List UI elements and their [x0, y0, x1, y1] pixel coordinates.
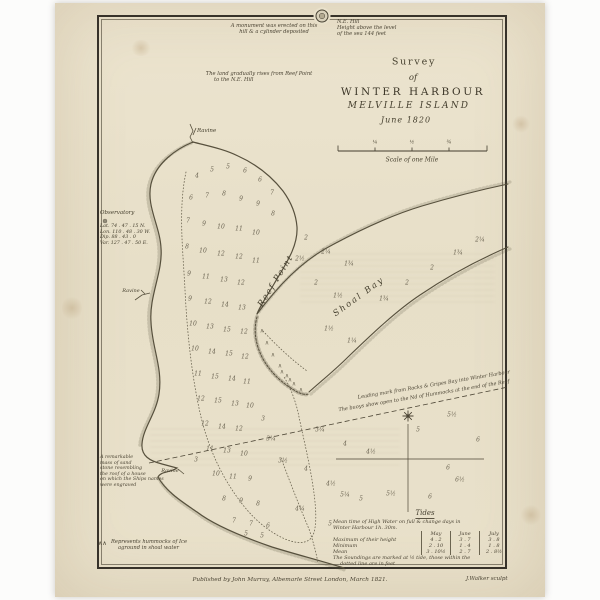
title-date: June 1820	[381, 116, 431, 125]
sounding-value: 10	[189, 321, 197, 328]
label-ravine-top: Ravine	[197, 128, 216, 134]
sounding-value: 14	[221, 302, 229, 309]
observatory-dip: Dip. 88 . 43 . 0	[100, 235, 136, 240]
sounding-value: 6	[243, 168, 247, 175]
ne-hill-note-line3: of the sea 144 feet	[337, 31, 386, 37]
sounding-value: 11	[202, 274, 210, 281]
sounding-value: 14	[208, 349, 216, 356]
sounding-value: 4	[304, 466, 308, 473]
sounding-value: 1¾	[379, 296, 389, 303]
hummock-legend-icon: ∧∧	[98, 540, 107, 547]
sounding-value: 3½	[278, 458, 288, 465]
sounding-value: 11	[194, 371, 202, 378]
sounding-value: 2½	[295, 256, 305, 263]
sounding-value: 8	[271, 211, 275, 218]
sounding-value: 1½	[324, 326, 334, 333]
sounding-value: 9	[239, 196, 243, 203]
sounding-value: 5	[359, 496, 363, 503]
sounding-value: 7	[249, 521, 253, 528]
label-ravine-south: Ravine	[161, 468, 178, 474]
sounding-value: 7	[186, 218, 190, 225]
sounding-value: 3¼	[266, 436, 276, 443]
stream-west	[135, 293, 150, 300]
ice-hummock-mark: ∧	[265, 340, 269, 347]
sounding-value: 10	[191, 346, 199, 353]
sounding-value: 4¾	[295, 506, 305, 513]
sounding-value: 5	[210, 167, 214, 174]
monument-medallion-icon	[314, 8, 331, 25]
title-melville-island: MELVILLE ISLAND	[348, 101, 470, 111]
sounding-value: 11	[206, 446, 214, 453]
tides-footnote-line2: dotted line are in feet	[340, 561, 395, 567]
sounding-value: 15	[223, 327, 231, 334]
ice-hummock-mark: ∧	[260, 328, 264, 335]
title-survey: Survey	[392, 57, 436, 68]
sounding-value: 8	[256, 501, 260, 508]
scale-tick-half: ½	[410, 141, 415, 146]
sounding-value: 1¼	[347, 338, 357, 345]
scale-tick-quarter: ¼	[373, 141, 378, 146]
sounding-value: 10	[217, 224, 225, 231]
sounding-value: 6	[258, 177, 262, 184]
publisher-imprint: Published by John Murray, Albemarle Stre…	[193, 577, 388, 583]
sounding-value: 5¼	[340, 492, 350, 499]
sounding-value: 11	[235, 226, 243, 233]
sounding-value: 9	[239, 498, 243, 505]
sounding-value: 2¼	[475, 237, 485, 244]
sounding-value: 15	[225, 351, 233, 358]
sounding-value: 13	[206, 324, 214, 331]
scale-caption: Scale of one Mile	[386, 157, 439, 164]
sounding-value: 10	[246, 403, 254, 410]
sounding-value: 12	[235, 426, 243, 433]
sounding-value: 9	[202, 221, 206, 228]
sounding-value: 5	[244, 531, 248, 538]
sounding-value: 9	[187, 271, 191, 278]
observatory-title: Observatory	[100, 210, 134, 216]
sounding-value: 2	[430, 265, 434, 272]
ice-hummock-mark: ∧	[280, 369, 284, 376]
sounding-value: 6	[428, 494, 432, 501]
sounding-value: 3¾	[315, 427, 325, 434]
stream-south	[178, 469, 184, 474]
coastlines	[140, 142, 510, 570]
observatory-lat: Lat. 74 . 47 . 15 N.	[100, 224, 145, 229]
sounding-value: 13	[231, 401, 239, 408]
sounding-value: 12	[217, 251, 225, 258]
observatory-mark-icon	[103, 219, 107, 223]
sounding-value: 2¼	[321, 249, 331, 256]
sounding-value: 6	[476, 437, 480, 444]
sounding-value: 6	[189, 195, 193, 202]
sounding-value: 1¾	[344, 261, 354, 268]
title-of: of	[409, 73, 417, 83]
sounding-value: 12	[235, 254, 243, 261]
sounding-value: 8	[222, 496, 226, 503]
sounding-value: 11	[229, 474, 237, 481]
sounding-value: 10	[212, 471, 220, 478]
sounding-value: 12	[237, 280, 245, 287]
sounding-value: 9	[248, 476, 252, 483]
tides-table: May June July Maximum of their height 4 …	[333, 531, 509, 555]
sounding-value: 13	[220, 277, 228, 284]
sounding-value: 12	[241, 354, 249, 361]
ice-hummock-mark: ∧	[271, 352, 275, 359]
sandstone-note-line4: the roof of a house	[100, 472, 146, 477]
sounding-value: 1¾	[453, 250, 463, 257]
sounding-value: 11	[243, 379, 251, 386]
sandstone-note-line6: were engraved	[100, 483, 136, 488]
sounding-value: 4	[343, 441, 347, 448]
title-winter-harbour: WINTER HARBOUR	[341, 86, 485, 98]
sounding-value: 5½	[386, 491, 396, 498]
sounding-value: 5	[416, 427, 420, 434]
sounding-value: 7	[232, 518, 236, 525]
sounding-value: 11	[252, 258, 260, 265]
sounding-value: 6½	[455, 477, 465, 484]
sounding-value: 15	[211, 374, 219, 381]
sandstone-note-line3: stone resembling	[100, 466, 142, 471]
scale-tick-three-quarter: ¾	[447, 141, 452, 146]
label-ravine-west: Ravine	[122, 288, 139, 294]
observatory-lon: Lon. 110 . 48 . 30 W.	[100, 230, 150, 235]
sounding-value: 12	[204, 299, 212, 306]
scale-bar	[338, 146, 487, 152]
stream-west-fork	[141, 290, 145, 294]
sounding-value: 5	[260, 533, 264, 540]
sounding-value: 7	[270, 190, 274, 197]
sounding-value: 9	[256, 201, 260, 208]
sounding-value: 2	[405, 280, 409, 287]
sounding-value: 3	[194, 457, 198, 464]
product-photo-of-antique-map: { "palette": {"paper":"#e9e1cb","ink":"#…	[0, 0, 600, 600]
sandstone-note-line1: A remarkable	[100, 455, 133, 460]
sounding-value: 4½	[326, 481, 336, 488]
coast-peninsula-east	[257, 184, 508, 314]
sounding-value: 12	[197, 396, 205, 403]
sounding-value: 12	[240, 329, 248, 336]
ravine-streams	[135, 124, 196, 474]
sounding-value: 15	[214, 398, 222, 405]
hummock-legend-line2: aground in shoal water	[118, 545, 179, 551]
sounding-value: 14	[228, 376, 236, 383]
sounding-value: 5½	[447, 412, 457, 419]
ice-hummock-mark: ∧	[288, 377, 292, 384]
ice-hummock-mark: ∧	[299, 387, 303, 394]
compass-north-star-icon	[403, 411, 414, 422]
ice-hummock-mark: ∧	[292, 381, 296, 388]
sounding-value: 9	[188, 296, 192, 303]
sandstone-note-line5: on which the Ships names	[100, 477, 164, 482]
sounding-value: 4	[195, 173, 199, 180]
sounding-value: 8	[185, 244, 189, 251]
sounding-value: 13	[223, 448, 231, 455]
sounding-value: 6	[266, 523, 270, 530]
monument-note-line2: hill & a cylinder deposited	[239, 29, 309, 35]
sounding-value: 13	[238, 305, 246, 312]
tides-row-mean-july: 2 . 8½	[479, 549, 508, 555]
sounding-value: 4½	[366, 449, 376, 456]
sounding-value: 3	[261, 416, 265, 423]
stream-top-fork	[193, 128, 196, 135]
sounding-value: 5	[328, 521, 332, 528]
land-rise-note-line2: to the N.E. Hill	[214, 77, 253, 83]
sounding-value: 10	[199, 248, 207, 255]
sounding-value: 5	[226, 164, 230, 171]
engraver-credit: J.Walker sculpt	[466, 576, 508, 582]
sandstone-note-line2: mass of sand	[100, 461, 132, 466]
sounding-value: 10	[252, 230, 260, 237]
sounding-value: 1½	[333, 293, 343, 300]
sounding-value: 7	[205, 193, 209, 200]
sounding-value: 12	[201, 421, 209, 428]
tides-title: Tides	[415, 509, 434, 519]
sounding-value: 2	[304, 235, 308, 242]
sounding-value: 14	[218, 424, 226, 431]
reef-east-dotted-line	[263, 331, 307, 371]
stream-top	[190, 124, 193, 143]
sounding-value: 10	[240, 451, 248, 458]
observatory-var: Var. 127 . 47 . 50 E.	[100, 241, 148, 246]
tides-intro-line2: Winter Harbour 1h. 30m.	[333, 525, 397, 531]
sounding-value: 6	[446, 465, 450, 472]
sounding-value: 8	[222, 191, 226, 198]
sounding-value: 2	[314, 280, 318, 287]
